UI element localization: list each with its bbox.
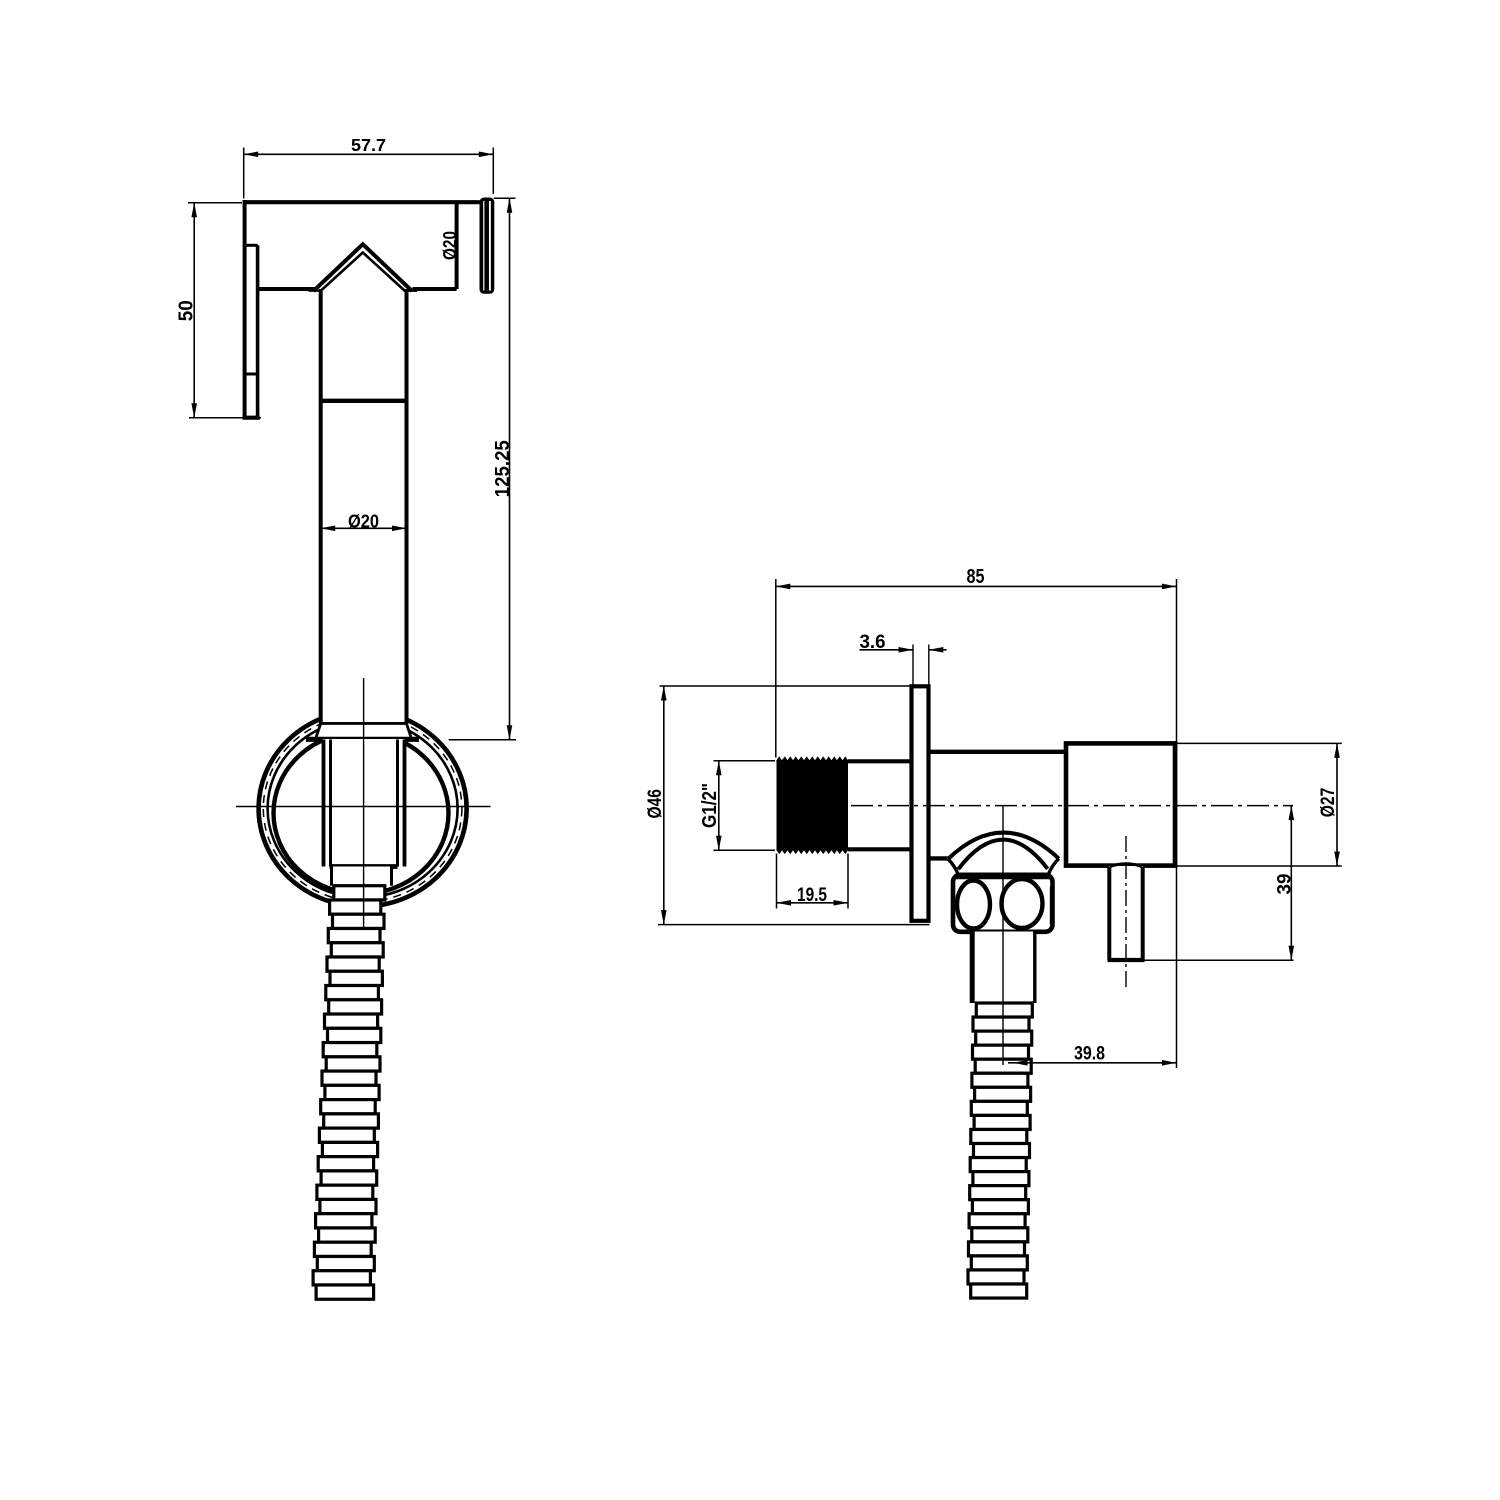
svg-text:39.8: 39.8 <box>1074 1044 1105 1065</box>
svg-text:Ø46: Ø46 <box>645 789 666 819</box>
svg-text:57.7: 57.7 <box>351 135 386 155</box>
svg-text:G1/2": G1/2" <box>699 783 721 828</box>
svg-text:Ø20: Ø20 <box>348 511 379 531</box>
svg-text:85: 85 <box>967 566 985 588</box>
svg-text:Ø20: Ø20 <box>440 231 460 260</box>
svg-text:3.6: 3.6 <box>860 632 886 653</box>
svg-text:19.5: 19.5 <box>797 885 827 906</box>
svg-text:125.25: 125.25 <box>492 440 514 497</box>
svg-text:50: 50 <box>175 300 197 321</box>
svg-text:39: 39 <box>1274 874 1295 895</box>
svg-text:Ø27: Ø27 <box>1318 788 1339 818</box>
